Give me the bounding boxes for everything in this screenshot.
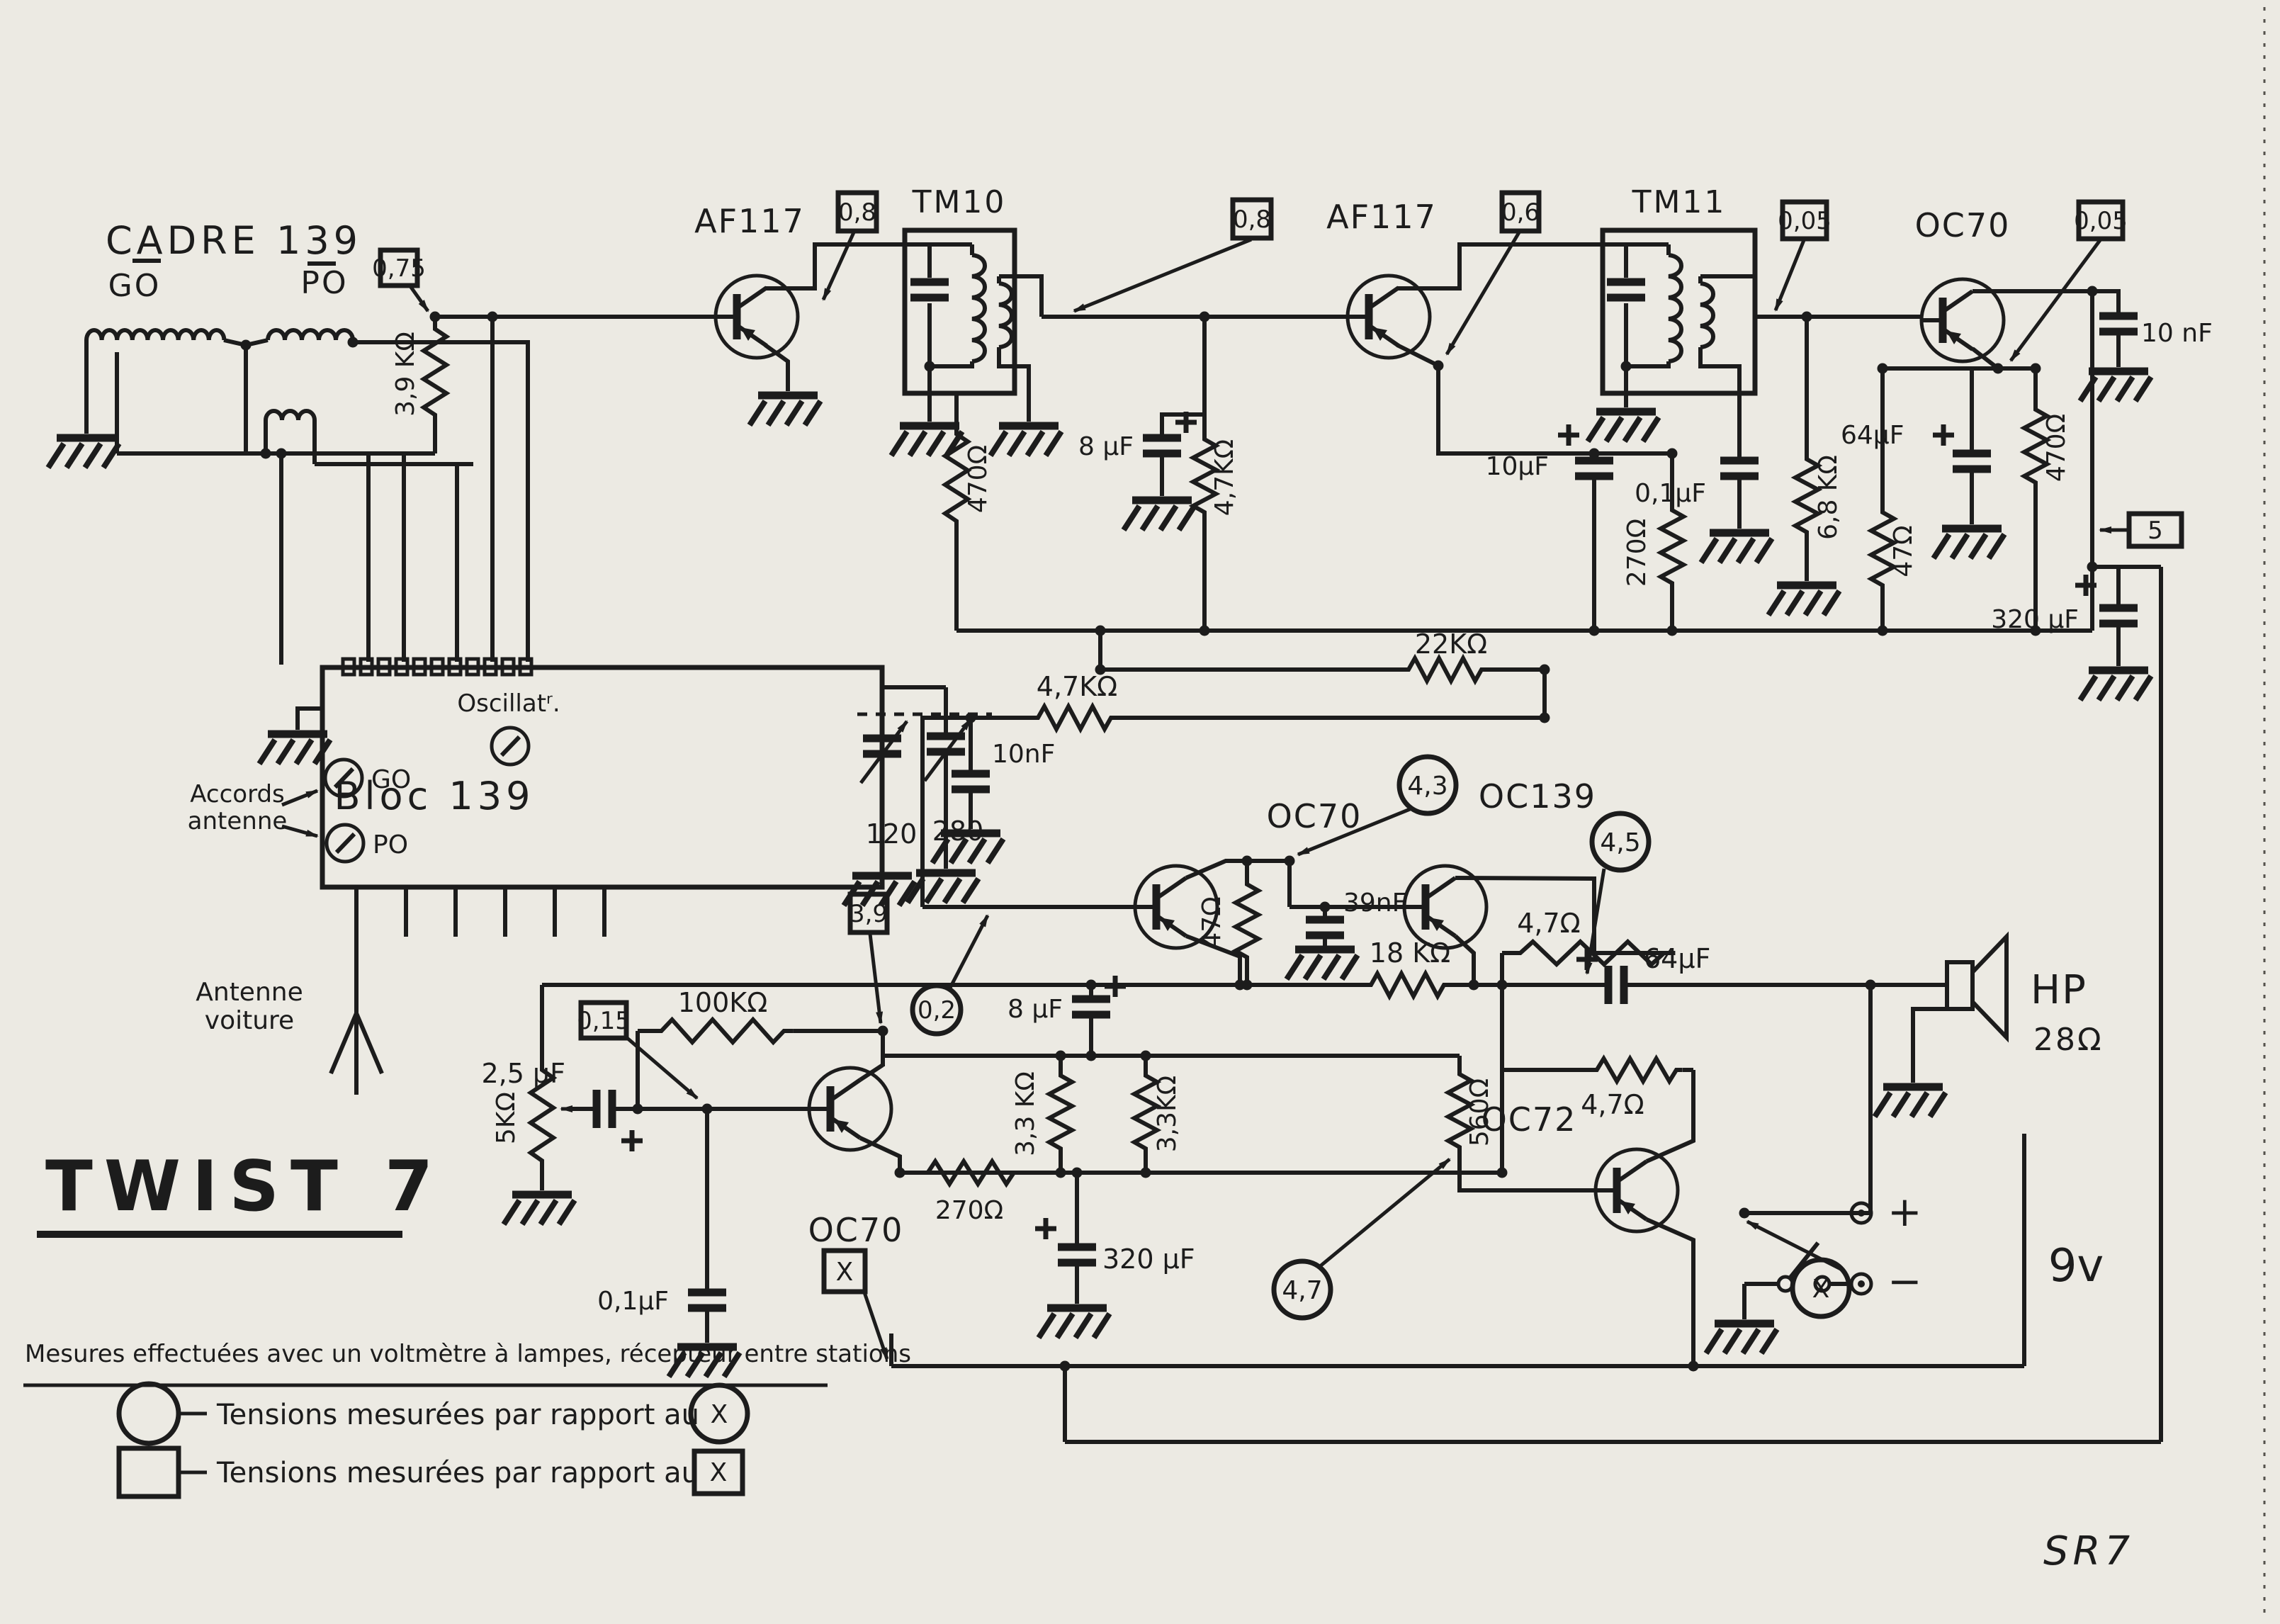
cap-8uf-af	[1072, 999, 1110, 1015]
r-470-if1-label: 470Ω	[964, 445, 993, 513]
resistor-22k	[1403, 658, 1487, 681]
bloc-po-label: PO	[373, 830, 408, 859]
vcircle-43-value: 4,3	[1407, 772, 1447, 801]
transistor-q7-oc70	[809, 1068, 891, 1150]
c-2u5-label: 2,5 μF	[481, 1058, 565, 1089]
accords-arrow-po	[282, 826, 317, 836]
cadre-title: CADRE 139	[106, 218, 362, 263]
cap-2u5	[597, 1090, 612, 1128]
legend-box-text: Tensions mesurées par rapport au	[216, 1457, 699, 1489]
battery-minus-terminal	[1851, 1274, 1871, 1294]
cap-64uf-out	[1608, 966, 1624, 1004]
capacitors	[597, 282, 2138, 1308]
resistor-3k3-a	[1049, 1070, 1072, 1154]
legend-x-circle-value: X	[711, 1400, 728, 1429]
vbox-39-value: 3,9	[850, 900, 888, 928]
junction-dots	[241, 286, 2098, 1372]
tm11-label: TM11	[1632, 184, 1727, 220]
vcircle-45-value: 4,5	[1600, 828, 1640, 857]
r-270-af-label: 270Ω	[935, 1196, 1003, 1225]
r-4k7-out-label: 4,7Ω	[1581, 1089, 1644, 1120]
q4-label: OC70	[1267, 797, 1362, 835]
resistor-4k7-agc	[1032, 706, 1117, 729]
cadre-go-label: GO	[108, 268, 162, 304]
q7-label: OC70	[808, 1211, 904, 1249]
bloc-go-label: GO	[371, 765, 411, 794]
r-22k-label: 22KΩ	[1415, 628, 1487, 660]
c-320uf-psu-label: 320 μF	[1991, 605, 2079, 634]
c-8uf-af-label: 8 μF	[1008, 995, 1063, 1024]
battery-minus-label: −	[1887, 1257, 1924, 1305]
c-10nf-agc-label: 10nF	[992, 740, 1055, 769]
accords-line2: antenne	[188, 807, 288, 835]
varcap-120-label: 120	[866, 818, 918, 850]
cap-39nf	[1306, 920, 1344, 935]
r-100k-label: 100KΩ	[678, 987, 768, 1018]
c-01uf-af-label: 0,1μF	[597, 1287, 669, 1316]
r-4k7-agc-label: 4,7KΩ	[1037, 671, 1117, 702]
vbox-08a-value: 0,8	[838, 198, 876, 227]
c-320uf-af-label: 320 μF	[1102, 1244, 1195, 1275]
q3-label: OC70	[1915, 206, 2011, 244]
c-8uf-if-label: 8 μF	[1078, 432, 1134, 461]
r-3k3-b-label: 3,3KΩ	[1153, 1076, 1182, 1152]
vbox-08b-value: 0,8	[1233, 205, 1271, 234]
cap-320uf-psu	[2099, 608, 2138, 624]
r-470-det-label: 470Ω	[2042, 414, 2071, 482]
cap-01uf-af	[688, 1292, 726, 1308]
transistor-q3-oc70	[1921, 279, 2004, 361]
c-10uf-label: 10μF	[1486, 452, 1549, 481]
legend-box-icon	[119, 1448, 179, 1496]
r-4k7-drv-label: 4,7Ω	[1517, 908, 1580, 939]
wires-speaker	[1913, 1009, 1956, 1083]
po-trimmer-icon	[327, 825, 363, 862]
voltage-circles	[913, 757, 1849, 1318]
r-47-af-label: 47Ω	[1197, 896, 1226, 948]
q5-label: OC139	[1479, 777, 1596, 816]
cap-tm10	[910, 282, 949, 298]
coil-po	[268, 330, 353, 340]
cap-10uf	[1575, 461, 1613, 476]
resistor-3k9	[424, 322, 446, 422]
legend-note: Mesures effectuées avec un voltmètre à l…	[25, 1340, 911, 1368]
resistor-270-if	[1661, 504, 1683, 589]
accords-line1: Accords	[190, 780, 285, 808]
page-title: TWIST 7	[45, 1146, 444, 1227]
r-3k3-a-label: 3,3 KΩ	[1011, 1071, 1040, 1156]
c-10nf-det-label: 10 nF	[2141, 319, 2213, 348]
vcircle-02-value: 0,2	[918, 996, 956, 1025]
vbox-005b-value: 0,05	[2074, 207, 2128, 235]
speaker-impedance: 28Ω	[2033, 1022, 2104, 1058]
transistor-q6-oc72	[1596, 1149, 1678, 1231]
cap-01uf-if	[1720, 461, 1759, 476]
cadre-po-label: PO	[300, 265, 348, 301]
vcircle-x-value: X	[1812, 1275, 1830, 1304]
cap-320uf-af	[1058, 1247, 1096, 1263]
transistor-symbols	[716, 276, 2004, 1231]
tm10-box	[905, 230, 1015, 393]
legend-circle-text: Tensions mesurées par rapport au	[216, 1399, 699, 1431]
schematic-twist7: CADRE 139 GO PO AF117 AF117 OC70 OC70 OC…	[0, 0, 2280, 1624]
antenna-line2: voiture	[205, 1006, 294, 1035]
accords-arrow-go	[282, 791, 317, 805]
legend-circle-icon	[119, 1384, 179, 1443]
resistor-47-af	[1236, 879, 1258, 963]
tm10-label: TM10	[912, 184, 1007, 220]
transistor-q2-af117	[1348, 276, 1430, 358]
battery-plus-label: +	[1887, 1188, 1924, 1236]
q1-label: AF117	[694, 202, 805, 240]
c-64uf-if-label: 64μF	[1841, 421, 1904, 450]
vbox-015-value: 0,15	[577, 1007, 631, 1035]
oscillator-trimmer-icon	[492, 728, 529, 765]
r-47-if-label: 47Ω	[1889, 525, 1918, 577]
r-4k7-if-label: 4,7KΩ	[1210, 439, 1239, 516]
r-6k8-label: 6,8 KΩ	[1814, 455, 1843, 540]
r-5k-label: 5KΩ	[492, 1092, 521, 1144]
antenna-line1: Antenne	[196, 978, 303, 1007]
cap-64uf-if	[1953, 453, 1991, 469]
speaker-label: HP	[2031, 967, 2087, 1013]
vbox-005a-value: 0,05	[1778, 207, 1832, 235]
c-39nf-label: 39nF	[1343, 889, 1406, 918]
legend-x-box-value: X	[710, 1458, 728, 1487]
vbox-x-value: X	[836, 1258, 854, 1287]
q6-label: OC72	[1482, 1100, 1577, 1139]
coil-coupling	[266, 411, 315, 420]
c-64uf-out-label: 64μF	[1644, 943, 1710, 974]
sheet-code: SR7	[2043, 1528, 2134, 1574]
bloc139-name: Bloc 139	[334, 774, 534, 818]
vbox-06-value: 0,6	[1501, 198, 1540, 227]
q2-label: AF117	[1326, 198, 1437, 236]
r-560-label: 560Ω	[1465, 1078, 1494, 1146]
vbox-075-value: 0,75	[372, 254, 426, 283]
resistor-100k	[652, 1020, 794, 1042]
resistor-18k	[1365, 974, 1450, 996]
r-3k9-label: 3,9 KΩ	[391, 332, 420, 417]
wires-cadre	[86, 317, 528, 665]
resistor-4k7-out	[1591, 1059, 1683, 1081]
r-18k-label: 18 KΩ	[1370, 937, 1450, 969]
cap-tm11	[1607, 282, 1645, 298]
cap-10nf-det	[2099, 316, 2138, 332]
battery-voltage: 9v	[2048, 1240, 2104, 1292]
c-01uf-if-label: 0,1μF	[1635, 479, 1706, 508]
voltage-boxes	[380, 193, 2182, 1292]
transistor-q5-oc139	[1404, 866, 1486, 948]
speaker-symbol	[1947, 937, 2007, 1037]
varcap-280-label: 280	[932, 816, 984, 847]
transistor-q1-af117	[716, 276, 798, 358]
oscillator-label: Oscillatʳ.	[457, 689, 560, 718]
wires-preamp	[542, 985, 1502, 1343]
vcircle-47-value: 4,7	[1282, 1276, 1322, 1305]
vbox-5-value: 5	[2148, 517, 2163, 545]
cap-8uf-if	[1143, 438, 1181, 453]
cap-10nf-agc	[952, 774, 990, 789]
coil-go	[86, 330, 224, 340]
r-270-if-label: 270Ω	[1622, 519, 1652, 587]
